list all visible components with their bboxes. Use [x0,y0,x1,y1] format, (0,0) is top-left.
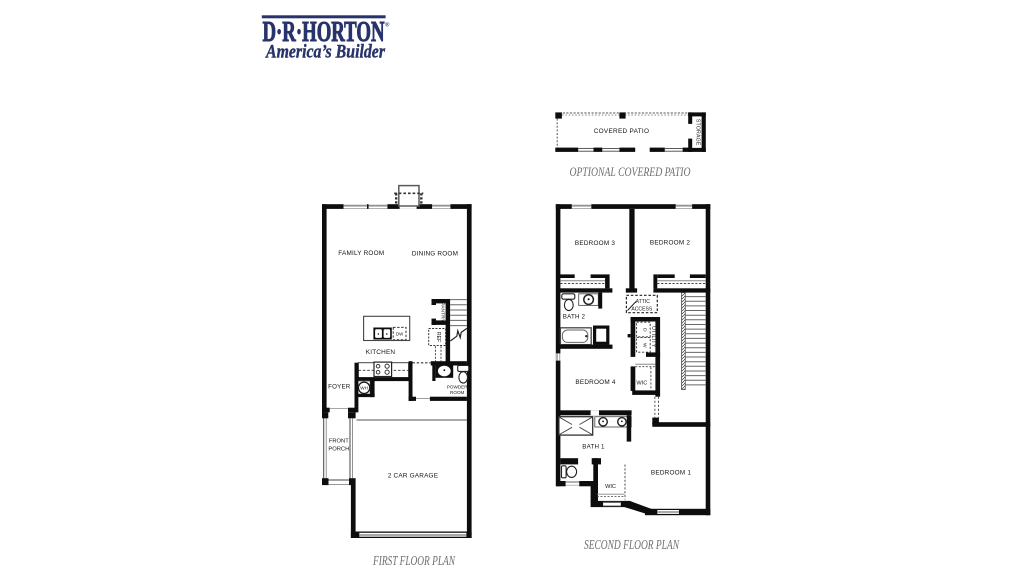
svg-text:POWDER: POWDER [447,385,468,390]
svg-text:WIC: WIC [605,484,616,490]
svg-text:FOYER: FOYER [328,384,351,391]
svg-text:ATTIC: ATTIC [636,299,651,305]
svg-text:WH: WH [360,386,368,391]
svg-text:America’s Builder: America’s Builder [265,42,386,62]
svg-text:DW: DW [396,332,404,337]
svg-text:KITCHEN: KITCHEN [366,349,396,356]
svg-text:ACCESS: ACCESS [631,306,653,312]
svg-text:WIC: WIC [636,381,647,387]
svg-text:W: W [642,343,648,348]
svg-text:FIRST FLOOR PLAN: FIRST FLOOR PLAN [372,553,456,568]
svg-text:PANTRY: PANTRY [439,302,445,323]
svg-text:SECOND FLOOR PLAN: SECOND FLOOR PLAN [584,537,680,552]
svg-text:D: D [642,328,648,332]
svg-text:BATH 1: BATH 1 [582,443,605,450]
svg-text:FRONT: FRONT [329,439,349,445]
svg-text:FAMILY ROOM: FAMILY ROOM [338,250,384,257]
svg-text:PORCH: PORCH [328,447,349,453]
svg-text:UTILITY: UTILITY [650,326,656,348]
svg-text:STORAGE: STORAGE [695,119,701,146]
svg-text:2 CAR GARAGE: 2 CAR GARAGE [388,472,438,479]
svg-text:BEDROOM 3: BEDROOM 3 [575,240,615,247]
svg-text:BATH 2: BATH 2 [563,313,586,320]
svg-text:DINING ROOM: DINING ROOM [412,250,458,257]
svg-text:BEDROOM 1: BEDROOM 1 [651,470,691,477]
svg-text:BEDROOM 2: BEDROOM 2 [650,240,690,247]
svg-text:COVERED PATIO: COVERED PATIO [594,128,650,135]
svg-text:REF: REF [435,332,441,342]
svg-text:ROOM: ROOM [450,390,464,395]
svg-text:BEDROOM 4: BEDROOM 4 [575,379,615,386]
svg-text:OPTIONAL COVERED PATIO: OPTIONAL COVERED PATIO [570,165,691,179]
svg-text:®: ® [385,22,390,29]
